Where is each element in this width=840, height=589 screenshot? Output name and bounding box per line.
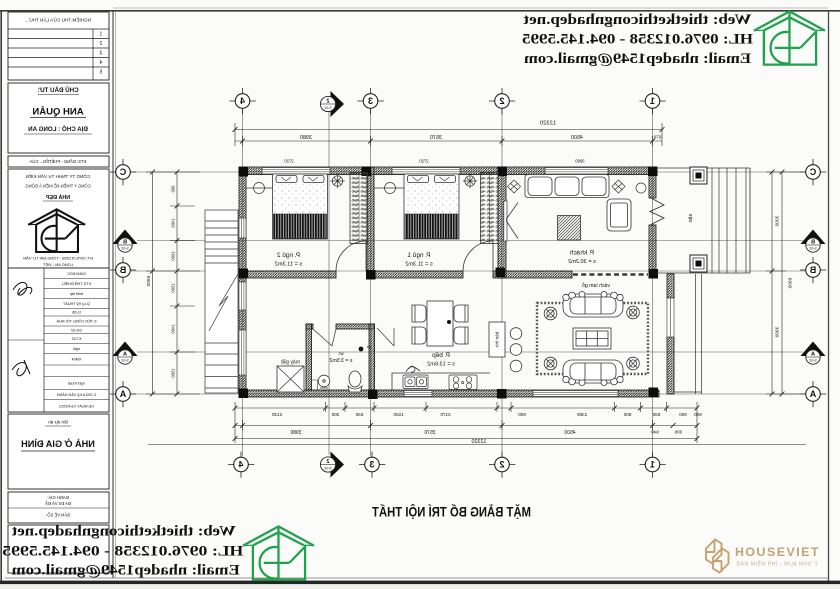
svg-text:thiết lập: thiết lập [70,292,83,296]
svg-text:2720: 2720 [419,159,429,164]
svg-text:GIÁM ĐỐC: GIÁM ĐỐC [67,271,86,276]
svg-text:ĐA Đ4 VẶ ĐẦ: ĐA Đ4 VẶ ĐẦ [45,501,71,506]
svg-text:3980: 3980 [290,430,301,436]
svg-text:HL: 0976.012358 - 094.145.5995: HL: 0976.012358 - 094.145.5995 [522,32,753,48]
svg-text:800: 800 [623,412,631,417]
svg-text:HOUSEVIET: HOUSEVIET [735,545,820,559]
svg-text:5: 5 [99,70,102,76]
svg-text:S-02: S-02 [121,359,128,363]
svg-text:4: 4 [238,460,243,470]
svg-text:s = 11.3m2: s = 11.3m2 [275,262,302,268]
svg-text:4500: 4500 [571,135,583,141]
svg-text:máy giặt: máy giặt [280,359,300,365]
svg-text:1: 1 [650,96,655,106]
svg-text:BẢN MIỄN PHÍ - MUA NHƯ Ý: BẢN MIỄN PHÍ - MUA NHƯ Ý [737,561,819,568]
svg-text:KTS.THÑ ĐHIỆU: KTS.THÑ ĐHIỆU [62,281,91,286]
svg-text:300: 300 [331,412,339,417]
svg-text:4: 4 [240,96,245,106]
svg-text:Web: thietkethicongnhadep.net: Web: thietkethicongnhadep.net [12,524,236,540]
svg-text:1400: 1400 [171,324,176,334]
svg-text:3: 3 [369,460,374,470]
svg-text:3900: 3900 [775,327,781,338]
svg-text:S-02: S-02 [324,106,331,110]
svg-text:3: 3 [368,96,373,106]
svg-text:630: 630 [355,412,363,417]
svg-text:4500: 4500 [564,430,575,436]
svg-text:C: C [809,167,816,177]
svg-text:S-02: S-02 [809,359,816,363]
svg-text:CHỦ ĐẦU TƯ:: CHỦ ĐẦU TƯ: [37,87,78,94]
svg-text:670: 670 [653,135,661,140]
svg-text:1520: 1520 [393,412,404,417]
svg-text:1: 1 [99,32,102,38]
svg-text:nghị thuật: nghị thuật [67,381,85,385]
svg-text:3: 3 [99,51,102,57]
svg-text:900: 900 [694,412,702,417]
svg-text:ĐÁNH GIÁ:: ĐÁNH GIÁ: [47,495,68,500]
svg-text:2: 2 [499,460,504,470]
svg-text:P. bếp: P. bếp [432,350,450,359]
svg-text:900: 900 [171,186,176,194]
svg-text:P. khách: P. khách [570,250,594,257]
svg-text:Email: nhadep1549@gmail.com: Email: nhadep1549@gmail.com [523,51,751,67]
svg-text:A: A [119,389,126,399]
svg-text:3900: 3900 [575,159,585,164]
svg-text:HL: 0976.012358 - 094.145.5995: HL: 0976.012358 - 094.145.5995 [2,544,243,560]
svg-text:GG.02: GG.02 [71,328,82,332]
svg-text:12320: 12320 [540,121,556,127]
svg-text:B: B [811,239,815,245]
svg-text:2: 2 [326,98,329,104]
svg-text:C: C [119,167,126,177]
svg-text:NHÀ ĐẸP: NHÀ ĐẸP [45,194,70,201]
svg-text:Q.Lý Kỹ THUẬT: Q.Lý Kỹ THUẬT [62,301,90,306]
svg-text:940: 940 [651,430,659,435]
svg-text:K.TÊN CÔNG TỒI NHÀ: K.TÊN CÔNG TỒI NHÀ [56,318,96,323]
svg-text:CĐ.NGÀY 01/4/2021: CĐ.NGÀY 01/4/2021 [59,404,94,408]
svg-text:KT.02: KT.02 [72,337,82,341]
svg-text:NHÀ Ở GIA ĐÌNH: NHÀ Ở GIA ĐÌNH [21,438,95,449]
svg-text:KTS: ĐẤNG - PHỄTỄN... CỦA: KTS: ĐẤNG - PHỄTỄN... CỦA [29,159,86,164]
svg-text:3980: 3980 [300,135,312,141]
svg-text:A: A [811,351,815,357]
svg-text:6900: 6900 [788,278,794,289]
svg-text:P. ngủ 2: P. ngủ 2 [277,251,300,259]
svg-text:2130: 2130 [271,412,282,417]
svg-text:wc: wc [338,351,343,356]
svg-text:1400: 1400 [171,218,176,228]
svg-text:1000: 1000 [171,251,176,261]
svg-text:NGHIÊM-THU CỬA LẬN THỨ...: NGHIÊM-THU CỬA LẬN THỨ... [25,16,91,23]
svg-text:LONG AN - VIỆT: LONG AN - VIỆT [42,262,73,267]
svg-text:S-02: S-02 [121,247,128,251]
svg-text:CÔNG TY TNHH Tư VẤN KIẾN: CÔNG TY TNHH Tư VẤN KIẾN [26,173,91,179]
svg-text:2720: 2720 [284,159,294,164]
svg-text:1500: 1500 [171,283,176,293]
svg-text:4: 4 [99,60,102,66]
svg-text:1: 1 [650,460,655,470]
svg-text:S-02: S-02 [324,467,331,471]
svg-text:830: 830 [652,412,660,417]
svg-text:2: 2 [499,96,504,106]
svg-text:2170: 2170 [440,412,451,417]
svg-text:6900: 6900 [146,276,152,287]
svg-text:ANH QUÂN: ANH QUÂN [32,105,83,117]
svg-text:Email: nhadep1549@gmail.com: Email: nhadep1549@gmail.com [11,563,240,579]
svg-text:A: A [123,351,127,357]
svg-text:ĐT: 0976.012358 - TỔNG ĐÀI TƯ: ĐT: 0976.012358 - TỔNG ĐÀI TƯ VẤN [23,255,93,260]
svg-text:vách lam gỗ: vách lam gỗ [582,282,610,289]
svg-text:2: 2 [326,459,329,465]
svg-text:tên dự án: tên dự án [48,420,68,425]
svg-text:12320: 12320 [472,439,487,445]
svg-text:900: 900 [679,412,687,417]
svg-text:B: B [119,265,126,275]
svg-text:S-02: S-02 [809,247,816,251]
svg-text:3000: 3000 [775,216,781,227]
svg-text:A: A [809,389,816,399]
svg-text:B: B [809,265,816,275]
svg-text:300: 300 [674,430,682,435]
svg-text:MẶT BẰNG BỐ TRÍ NỘI THẤT: MẶT BẰNG BỐ TRÍ NỘI THẤT [371,505,531,520]
svg-text:1500: 1500 [171,368,176,378]
svg-text:BẢN VẼ SỒ:: BẢN VẼ SỒ: [46,513,70,518]
svg-text:nghị: nghị [73,347,80,351]
svg-text:2: 2 [99,41,102,47]
svg-text:B: B [123,239,127,245]
svg-text:s = 13.6m2: s = 13.6m2 [427,362,455,368]
svg-text:s = 30.2m2: s = 30.2m2 [568,259,596,265]
svg-text:ga: ga [367,345,371,349]
svg-text:s = 11.3m2: s = 11.3m2 [405,262,432,268]
svg-text:ĐỊA CHỎ : LONG AN: ĐỊA CHỎ : LONG AN [28,126,88,133]
svg-text:bàn thờ: bàn thờ [495,332,500,348]
svg-text:s = 3.5m2: s = 3.5m2 [329,358,352,364]
svg-text:3570: 3570 [424,430,435,436]
svg-text:3570: 3570 [430,135,442,141]
svg-text:800: 800 [518,412,526,417]
svg-text:P. ngủ 1: P. ngủ 1 [407,251,430,259]
svg-text:C.GIỪA Kỹ VẬN HÀNH: C.GIỪA Kỹ VẬN HÀNH [56,392,96,397]
svg-text:Web: thietkethicongnhadep.net: Web: thietkethicongnhadep.net [524,12,752,28]
svg-text:sân: sân [688,214,694,223]
svg-text:ts đã: ts đã [71,310,80,314]
svg-text:2480: 2480 [576,412,587,417]
svg-text:CÔNG Y THIỄN KỄ KIẾN Á ĐÔNG: CÔNG Y THIỄN KỄ KIẾN Á ĐÔNG [25,184,90,189]
svg-text:XM04: XM04 [72,357,82,361]
